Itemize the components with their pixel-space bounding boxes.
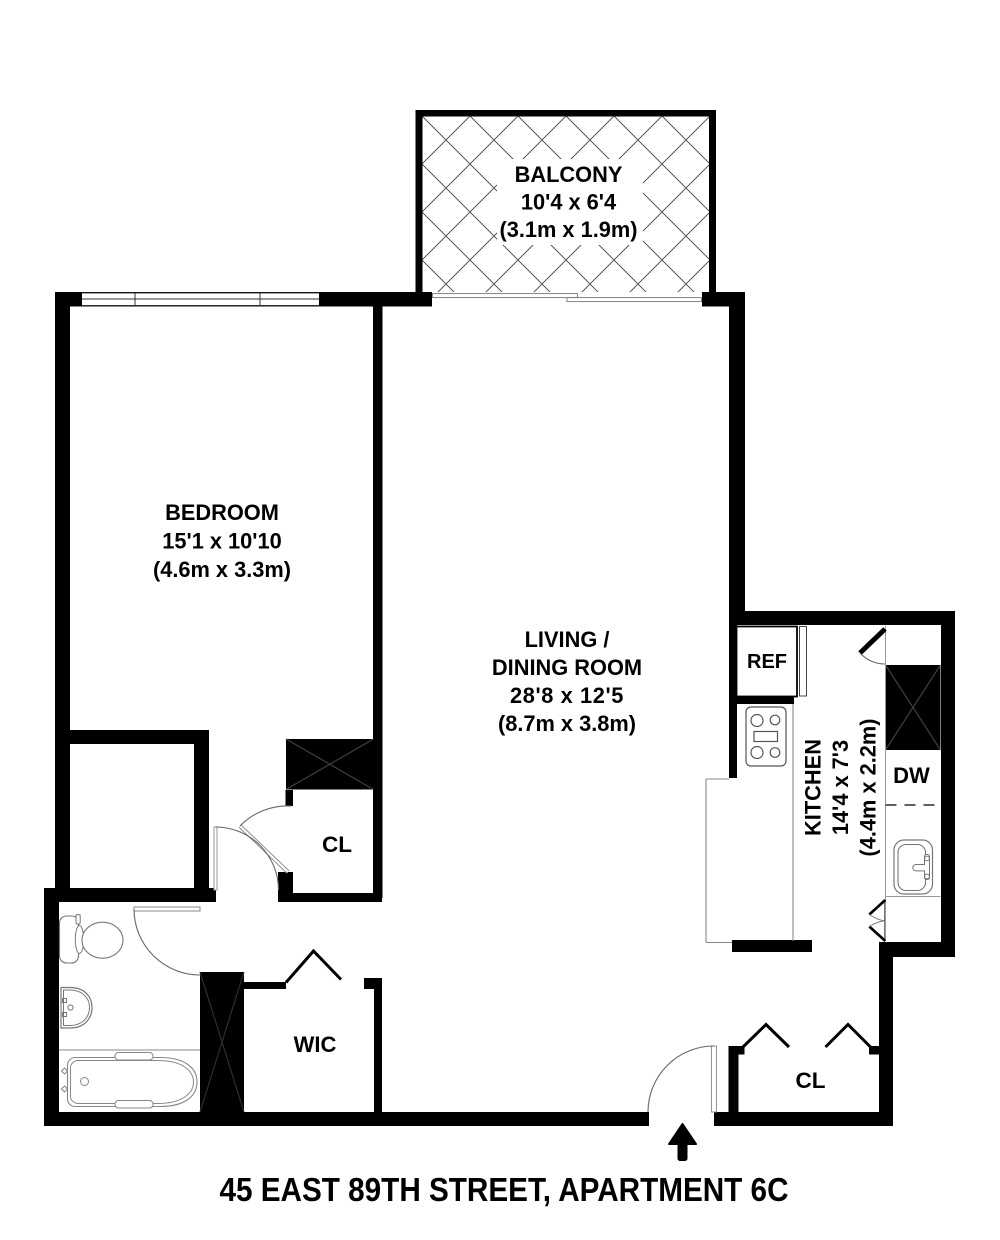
svg-text:10'4 x 6'4: 10'4 x 6'4 [521, 190, 616, 215]
svg-text:BEDROOM: BEDROOM [165, 500, 279, 525]
svg-text:DW: DW [893, 763, 930, 788]
svg-text:(3.1m x 1.9m): (3.1m x 1.9m) [499, 217, 637, 242]
svg-text:28'8 x 12'5: 28'8 x 12'5 [510, 683, 624, 708]
svg-text:DINING ROOM: DINING ROOM [492, 655, 642, 680]
svg-text:CL: CL [796, 1068, 826, 1093]
svg-text:REF: REF [747, 651, 787, 673]
svg-text:14'4 x 7'3: 14'4 x 7'3 [828, 740, 853, 835]
svg-text:15'1 x 10'10: 15'1 x 10'10 [162, 529, 281, 554]
svg-text:(8.7m x 3.8m): (8.7m x 3.8m) [498, 711, 636, 736]
svg-text:KITCHEN: KITCHEN [801, 739, 826, 836]
svg-text:WIC: WIC [294, 1032, 337, 1057]
svg-text:45 EAST 89TH STREET, APARTMENT: 45 EAST 89TH STREET, APARTMENT 6C [219, 1172, 788, 1209]
svg-text:(4.6m x 3.3m): (4.6m x 3.3m) [153, 557, 291, 582]
svg-text:LIVING /: LIVING / [525, 627, 610, 652]
svg-text:BALCONY: BALCONY [515, 162, 623, 187]
svg-text:CL: CL [322, 832, 352, 857]
svg-text:(4.4m x 2.2m): (4.4m x 2.2m) [856, 718, 881, 856]
